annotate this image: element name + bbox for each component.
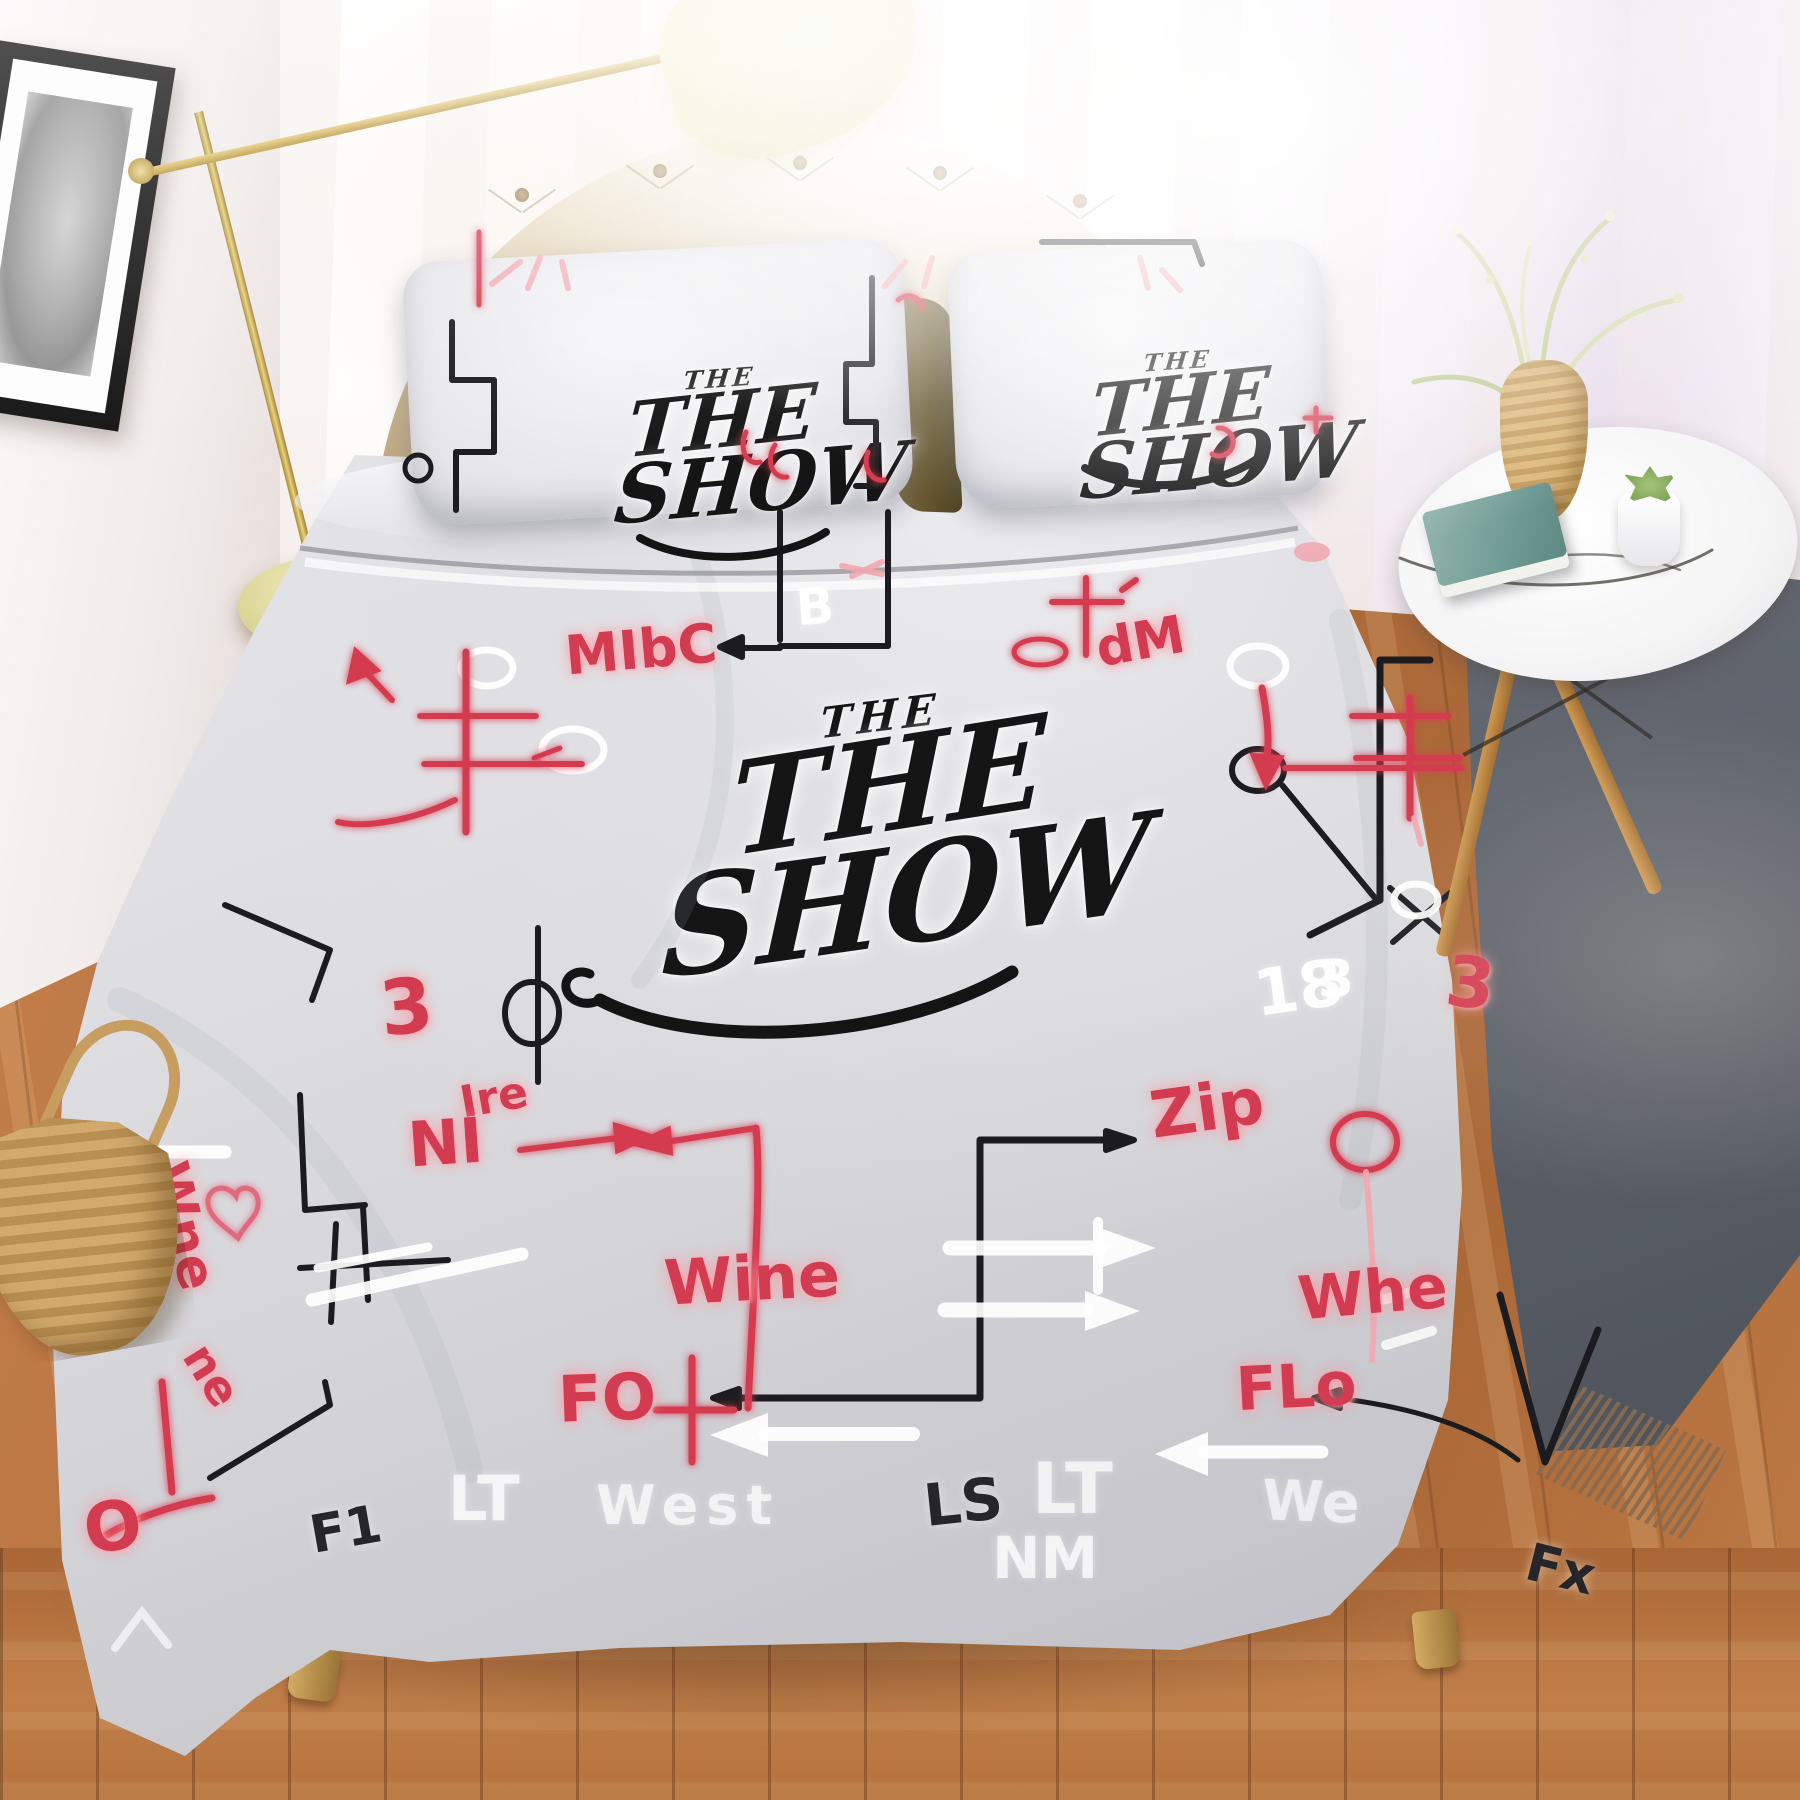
duvet-text-ls: LS (921, 1464, 1006, 1540)
red-doodles (98, 232, 1462, 1540)
pink-doodles (492, 258, 1421, 1360)
duvet-text-three-left: 3 (375, 959, 437, 1053)
duvet-text-we: We (1261, 1468, 1361, 1536)
duvet-text-o: O (79, 1484, 147, 1570)
duvet-text-mibc: MIbC (563, 611, 720, 687)
duvet-text-flo: FLo (1234, 1349, 1358, 1425)
duvet-text-ni: NI (406, 1103, 486, 1181)
duvet-text-lt-right: LT (1032, 1448, 1113, 1530)
duvet-text-wine: Wine (662, 1237, 841, 1319)
duvet-text-three-white: 3 (1318, 950, 1354, 1010)
duvet-text-zip: Zip (1145, 1064, 1268, 1153)
duvet-text-f1: F1 (305, 1494, 386, 1566)
plant-pot (1618, 492, 1680, 566)
duvet-text-west: West (596, 1474, 780, 1537)
duvet-text-whe: Whe (1295, 1252, 1450, 1335)
duvet-text-fo: FO (557, 1360, 658, 1437)
duvet-text-b: B (794, 577, 836, 638)
duvet-text-lt-left: LT (448, 1462, 520, 1535)
duvet-text-nm: NM (992, 1524, 1098, 1592)
bedroom-scene: THE THE SHOW THE THE SHOW THE THE SHOW (0, 0, 1800, 1800)
